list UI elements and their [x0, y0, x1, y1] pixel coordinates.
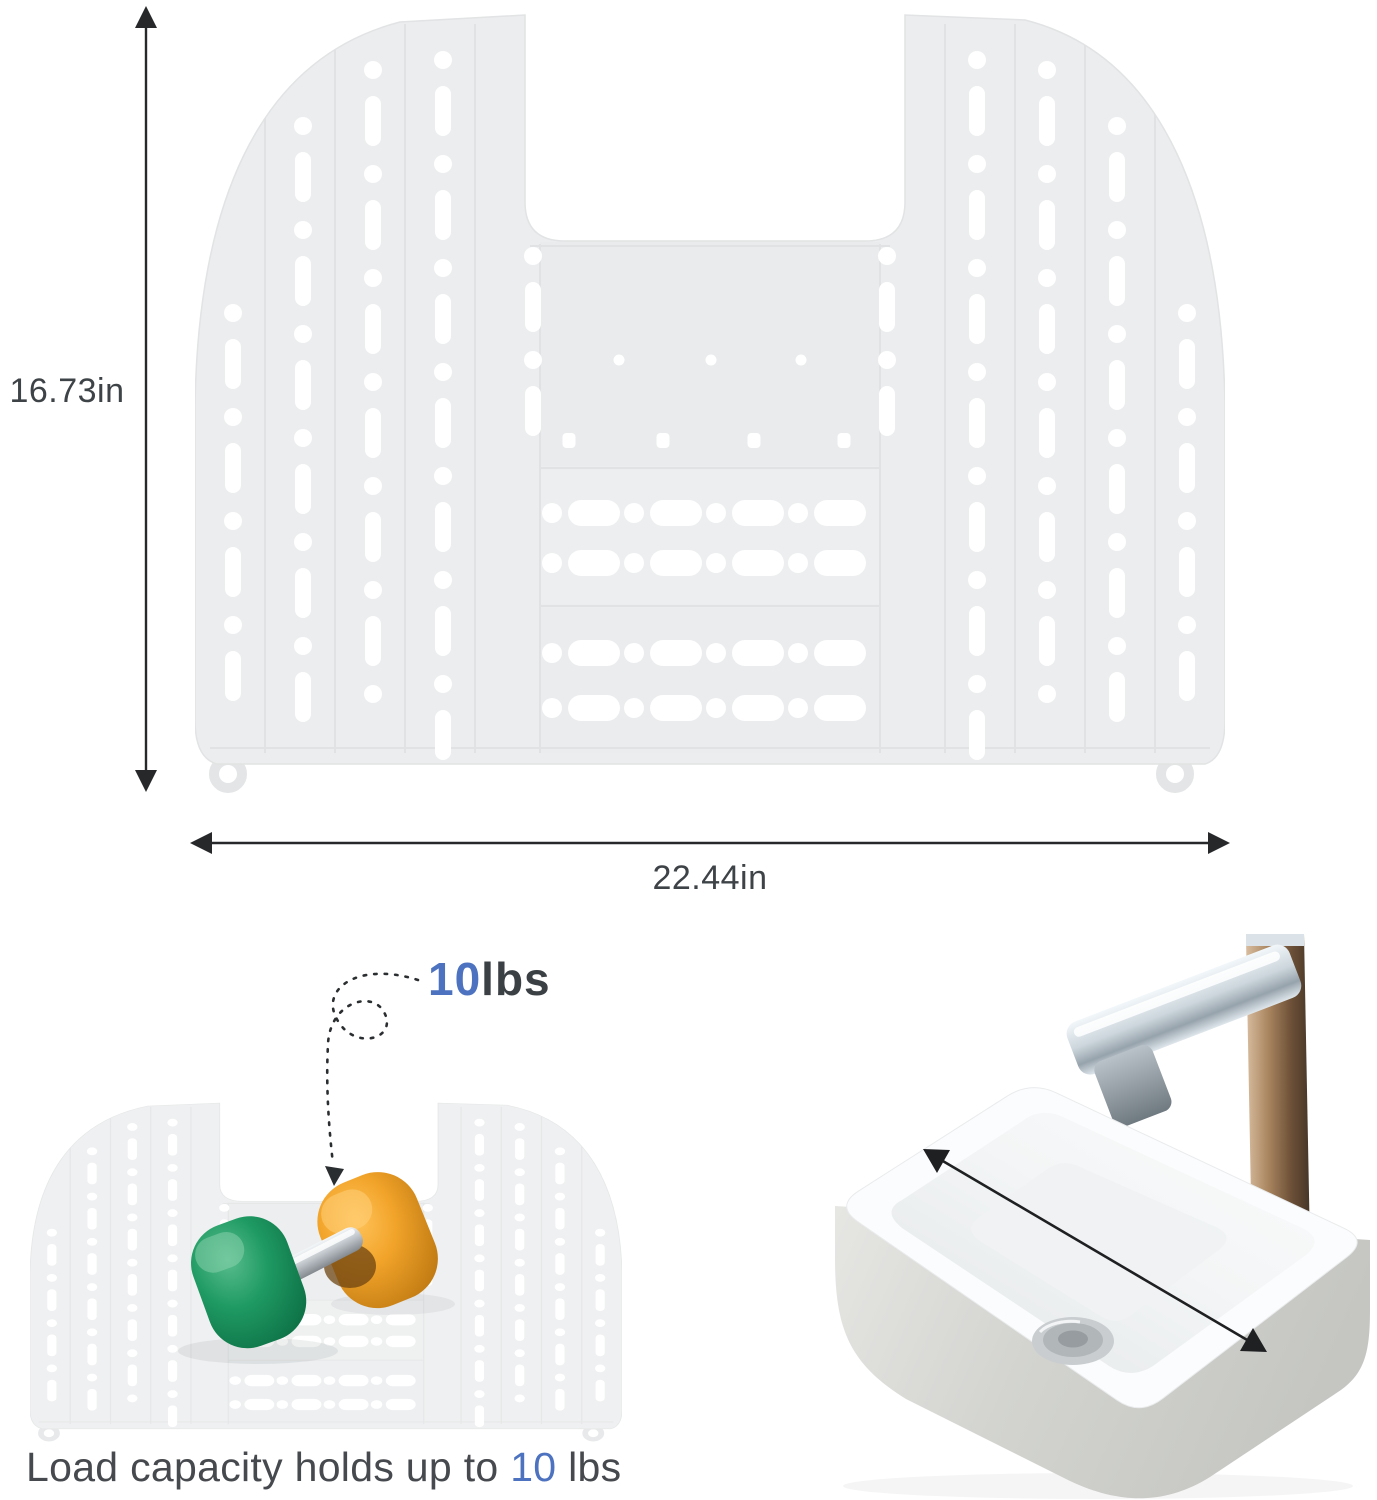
caption-value: 10 [510, 1444, 556, 1490]
width-arrow-icon [188, 826, 1232, 860]
height-arrow-icon [128, 4, 164, 794]
load-capacity-caption: Load capacity holds up to 10 lbs [26, 1444, 621, 1491]
height-dimension-label: 16.73in [5, 373, 129, 410]
product-infographic: 16.73in 22.44in 10lbs [0, 0, 1377, 1500]
caption-suffix: lbs [556, 1444, 621, 1490]
dumbbell-plate-green [180, 1205, 318, 1359]
caption-prefix: Load capacity holds up to [26, 1444, 510, 1490]
weight-label: 10lbs [428, 952, 551, 1006]
weight-value: 10 [428, 953, 481, 1005]
width-dimension-label: 22.44in [560, 860, 860, 897]
dumbbell-image [178, 1146, 478, 1386]
faucet-column-cap [1246, 934, 1304, 946]
sink-drain [1032, 1317, 1114, 1365]
weight-unit: lbs [481, 953, 550, 1005]
sink-figure [778, 928, 1377, 1500]
sink-mat-top-view [195, 8, 1225, 808]
